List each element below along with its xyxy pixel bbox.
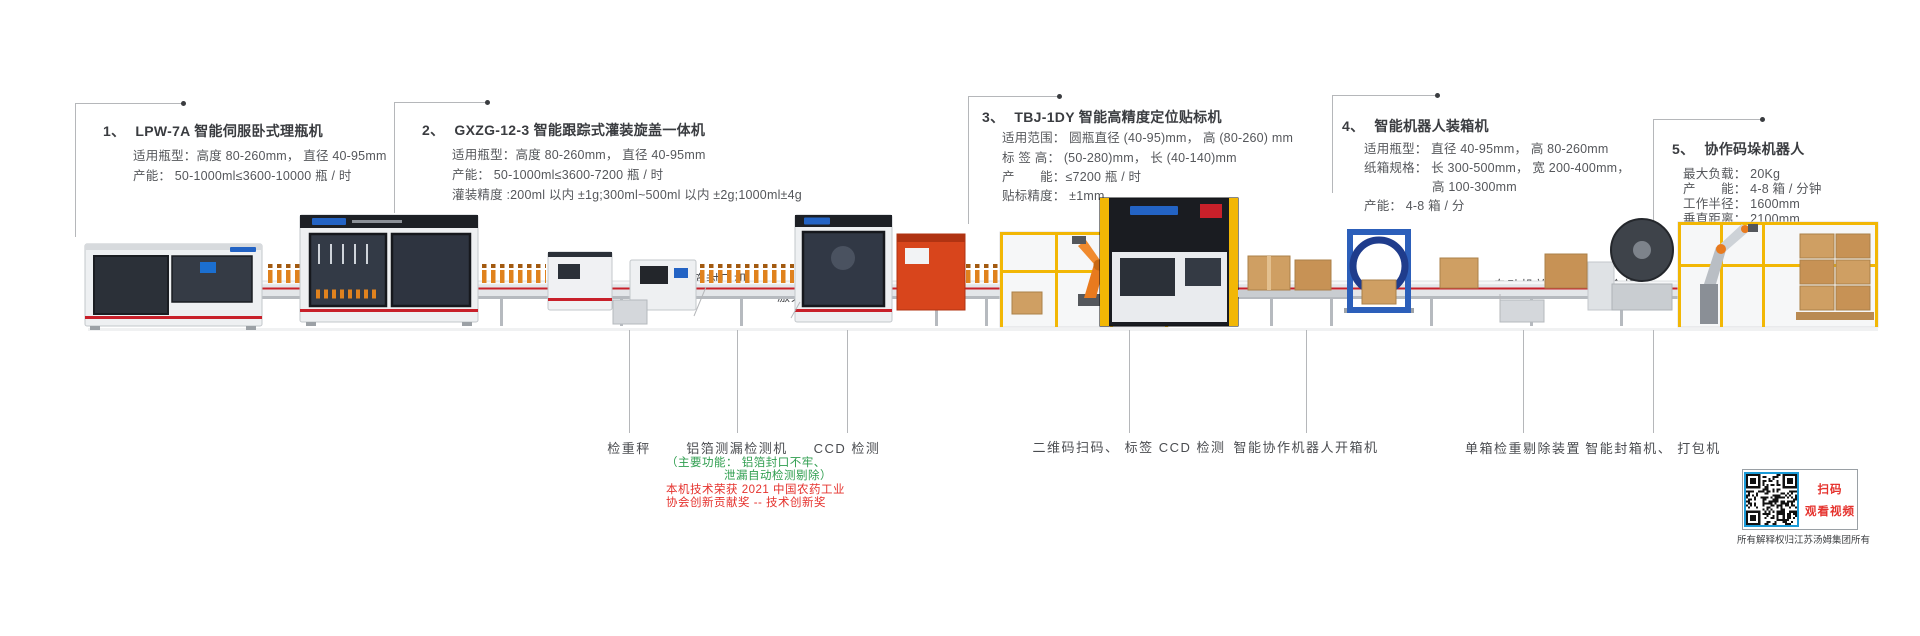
palletizing-robot-cell (1678, 222, 1878, 327)
strapping-machine (1344, 232, 1414, 313)
callout-spec: 适用瓶型：高度 80-260mm， 直径 40-95mm (133, 145, 387, 164)
station-label-cobot-uncaser: 智能协作机器人开箱机 (1233, 437, 1378, 456)
callout-spec: 适用瓶型：高度 80-260mm， 直径 40-95mm (452, 144, 706, 163)
floor-shadow (88, 328, 1878, 331)
station-leader (1306, 330, 1307, 433)
qr-text-line2: 观看视频 (1805, 503, 1855, 519)
callout-number: 2、 (422, 122, 444, 138)
callout-line (1653, 119, 1762, 120)
callout-spec: 纸箱规格： 长 300-500mm， 宽 200-400mm， (1364, 157, 1630, 176)
station-label-qrcode-ccd: 二维码扫码、 标签 CCD 检测 (1032, 437, 1225, 456)
production-line-illustration (0, 192, 1920, 432)
station-leader (629, 330, 630, 433)
callout-number: 1、 (103, 123, 125, 139)
filling-capping-machine (300, 215, 478, 326)
callout-dot (485, 100, 490, 105)
station-label-checkweigher: 检重秤 (607, 438, 651, 457)
case-sealer-and-film-reel (1588, 219, 1673, 310)
qr-text-line1: 扫码 (1818, 481, 1843, 497)
callout-title: 协作码垛机器人 (1704, 141, 1804, 157)
award-note-line2: 协会创新贡献奖 -- 技术创新奖 (666, 494, 826, 510)
qr-code (1744, 472, 1799, 527)
callout-spec: 适用瓶型： 直径 40-95mm， 高 80-260mm (1364, 138, 1609, 157)
bottle-unscrambler-machine (85, 244, 262, 330)
callout-line (394, 102, 487, 103)
station-leader (1523, 330, 1524, 433)
supply-cabinet (897, 234, 965, 310)
callout-line (1332, 95, 1333, 193)
callout-line (968, 96, 1059, 97)
qr-panel: 扫码 观看视频 (1742, 469, 1858, 530)
callout-line (1332, 95, 1437, 96)
station-leader (1129, 330, 1130, 433)
callout-spec: 产能： 50-1000ml≤3600-10000 瓶 / 时 (133, 165, 352, 184)
callout-dot (181, 101, 186, 106)
callout-spec: 产 能：≤7200 瓶 / 时 (1002, 166, 1141, 185)
production-line-infographic: 1、LPW-7A 智能伺服卧式理瓶机 适用瓶型：高度 80-260mm， 直径 … (0, 0, 1920, 636)
callout-dot (1057, 94, 1062, 99)
labeling-machine (795, 215, 892, 322)
callout-spec: 标 签 高： (50-280)mm， 长 (40-140)mm (1002, 147, 1237, 166)
station-leader (737, 330, 738, 433)
station-label-case-checkweigh-reject: 单箱检重剔除装置 (1465, 438, 1581, 457)
station-leader (847, 330, 848, 433)
callout-title: TBJ-1DY 智能高精度定位贴标机 (1014, 109, 1221, 125)
callout-title: GXZG-12-3 智能跟踪式灌装旋盖一体机 (454, 122, 705, 138)
callout-dot (1435, 93, 1440, 98)
callout-line (75, 103, 183, 104)
callout-spec: 产能： 50-1000ml≤3600-7200 瓶 / 时 (452, 164, 663, 183)
callout-spec: 适用范围： 圆瓶直径 (40-95)mm， 高 (80-260) mm (1002, 127, 1293, 146)
station-leader (1653, 330, 1654, 433)
qr-caption: 所有解释权归江苏汤姆集团所有 (1737, 532, 1867, 546)
callout-dot (1760, 117, 1765, 122)
callout-number: 3、 (982, 109, 1004, 125)
foil-sealing-machine (548, 252, 612, 310)
checkweigher (613, 300, 647, 324)
callout-number: 4、 (1342, 118, 1364, 134)
callout-number: 5、 (1672, 141, 1694, 157)
box-conveyor (1238, 256, 1348, 297)
callout-title: 智能机器人装箱机 (1374, 118, 1488, 134)
station-label-case-sealer-strapper: 智能封箱机、 打包机 (1585, 438, 1721, 457)
callout-title: LPW-7A 智能伺服卧式理瓶机 (135, 123, 323, 139)
case-packing-machine (1100, 198, 1238, 326)
